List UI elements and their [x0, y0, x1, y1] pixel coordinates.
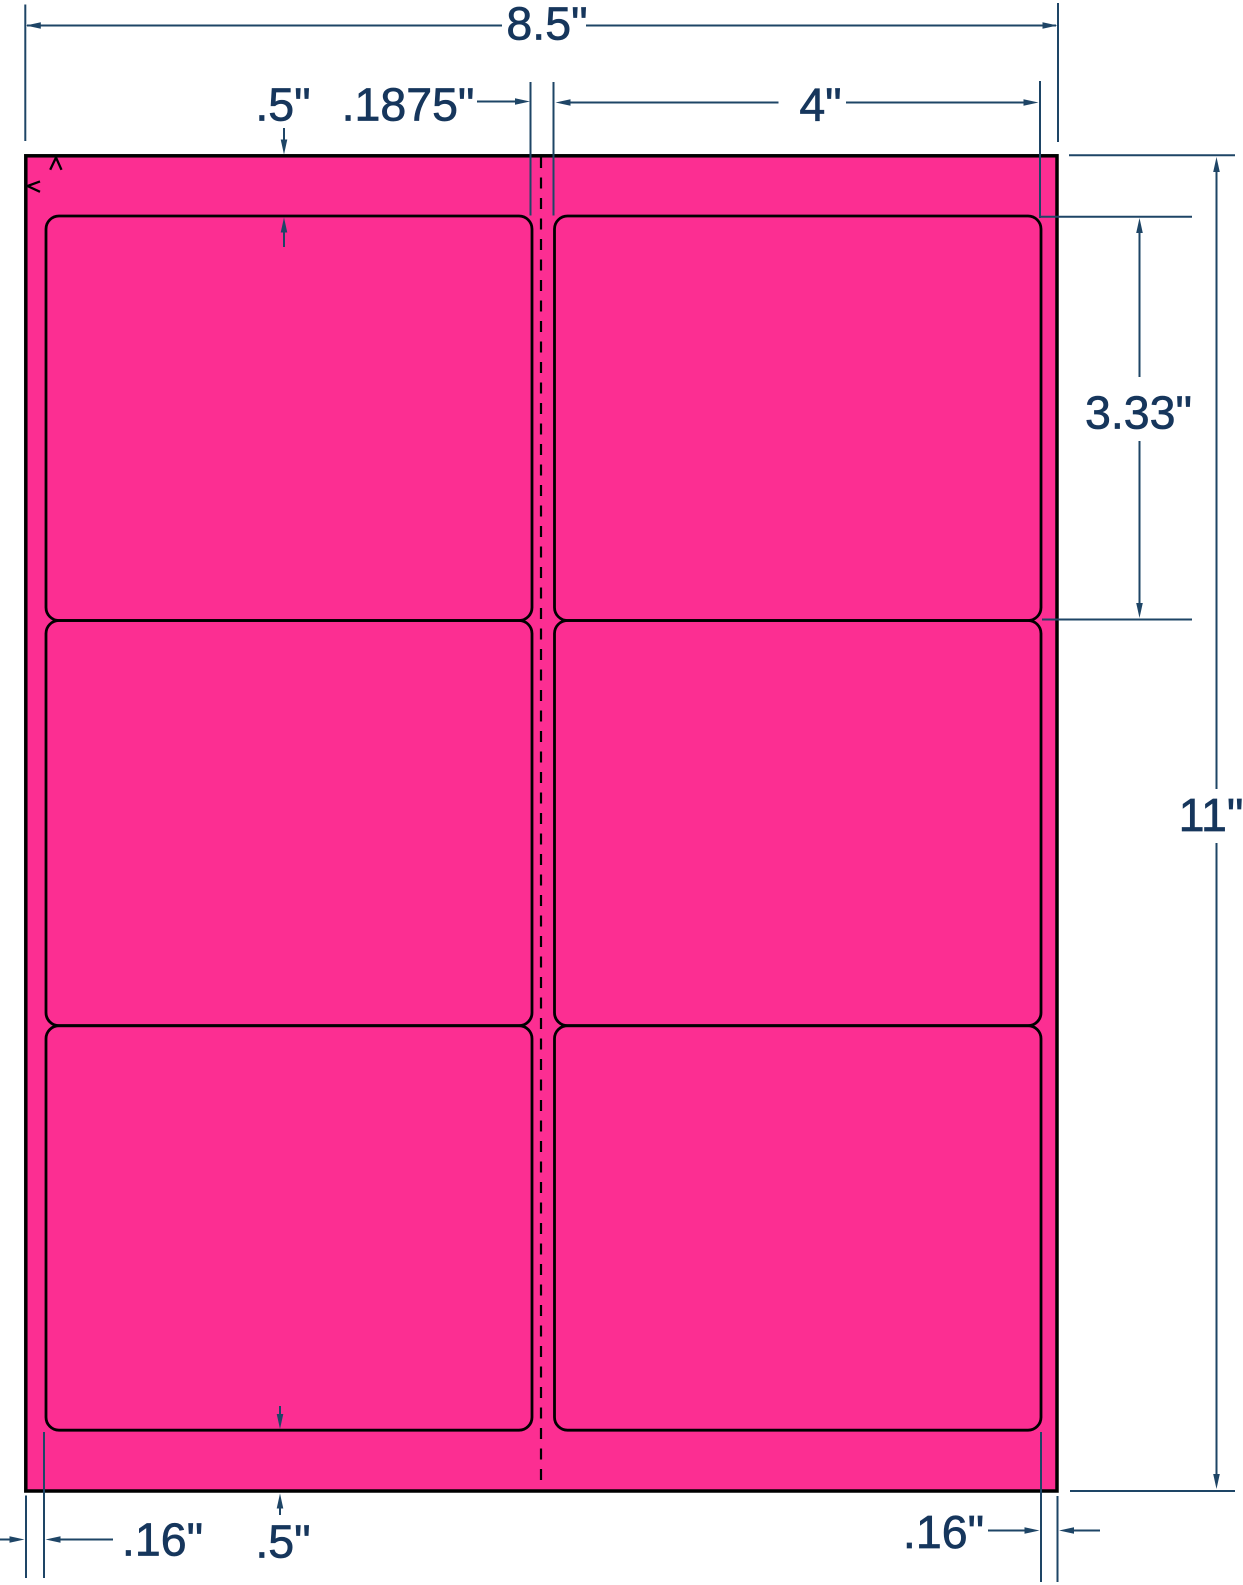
svg-text:.1875": .1875" [342, 79, 475, 131]
svg-text:4": 4" [799, 79, 841, 131]
svg-text:.5": .5" [255, 79, 310, 131]
svg-text:11": 11" [1179, 789, 1243, 841]
svg-text:.5": .5" [255, 1516, 310, 1568]
svg-text:.16": .16" [903, 1506, 984, 1558]
svg-text:3.33": 3.33" [1085, 387, 1192, 439]
svg-text:8.5": 8.5" [506, 0, 587, 50]
svg-text:.16": .16" [122, 1514, 203, 1566]
